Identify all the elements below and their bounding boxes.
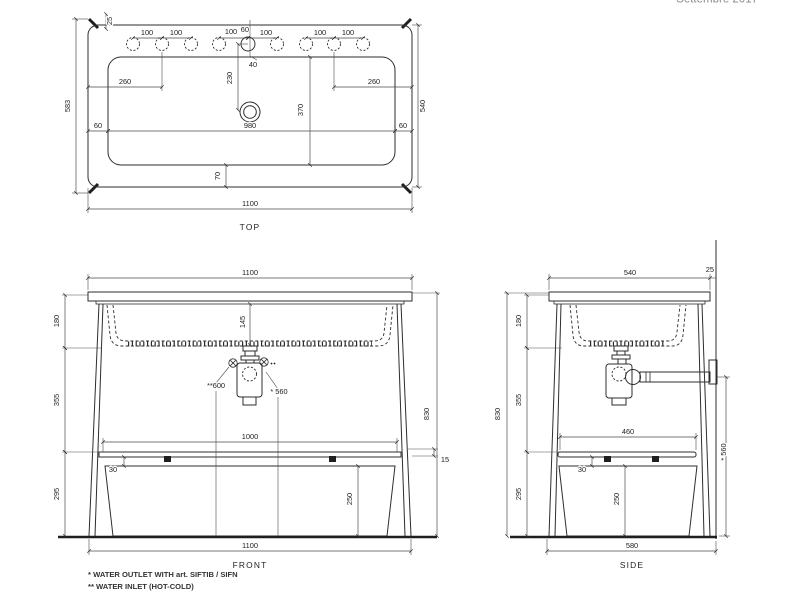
dim-overall-height: 830 xyxy=(493,408,502,420)
drain-hole-outer xyxy=(240,102,260,122)
leg-left xyxy=(95,304,103,536)
dim-corner-tab: 25 xyxy=(105,17,114,25)
dim-rim-gap-left: 60 xyxy=(94,121,102,130)
dim-hole-spacing: 100 xyxy=(314,28,326,37)
dim-basin-inner-depth: 145 xyxy=(238,316,247,328)
dim-outlet-height: * 560 xyxy=(719,443,728,460)
rail-connector xyxy=(164,456,171,462)
corner-tab-bottom-left xyxy=(89,184,98,193)
dim-rail-size: 15 xyxy=(441,455,449,464)
dim-seg-top: 180 xyxy=(514,315,523,327)
tap-hole-option xyxy=(185,38,198,51)
side-dimensions xyxy=(504,274,730,555)
dim-rim-gap-right: 60 xyxy=(399,121,407,130)
dim-hole-to-rim: 40 xyxy=(249,60,257,69)
dim-basin-width: 980 xyxy=(244,121,256,130)
dim-front-bottom-width: 1100 xyxy=(242,541,258,550)
dim-hole-spacing: 100 xyxy=(141,28,153,37)
tap-hole-option xyxy=(300,38,313,51)
dim-overall-depth: 583 xyxy=(63,100,72,112)
dim-seg-bottom: 295 xyxy=(52,488,61,500)
dim-seg-middle: 355 xyxy=(514,394,523,406)
dim-shelf-depth: 460 xyxy=(622,427,634,436)
dim-hole-to-drain: 230 xyxy=(225,72,234,84)
dim-seg-top: 180 xyxy=(52,315,61,327)
towel-rail xyxy=(99,452,401,457)
dim-body-depth: 540 xyxy=(418,100,427,112)
footnote-water-outlet: * WATER OUTLET WITH art. SIFTIB / SIFN xyxy=(88,570,238,579)
trap-outlet-stub xyxy=(243,397,256,405)
footnote-water-inlet: ** WATER INLET (HOT-COLD) xyxy=(88,582,194,591)
corner-tab-top-left xyxy=(89,19,98,28)
dim-seg-middle: 355 xyxy=(52,394,61,406)
water-inlet-symbol xyxy=(260,358,268,366)
side-basin xyxy=(570,305,686,346)
dim-seg-bottom: 295 xyxy=(514,488,523,500)
dim-hole-spacing: 100 xyxy=(260,28,272,37)
bottle-trap xyxy=(237,363,262,397)
tap-hole-option xyxy=(271,38,284,51)
dim-group-offset-right: 260 xyxy=(368,77,380,86)
dim-hole-spacing: 100 xyxy=(225,27,237,36)
trap-outlet-stub-side xyxy=(612,398,626,405)
drain-fitting-side xyxy=(614,346,628,351)
dim-outlet-height: * 560 xyxy=(270,387,287,396)
dim-overall-height: 830 xyxy=(422,408,431,420)
top-view-holes xyxy=(127,37,370,122)
dim-panel-height: 250 xyxy=(345,493,354,505)
front-dimensions xyxy=(62,274,440,555)
dim-shelf-width: 1000 xyxy=(242,432,258,441)
dim-front-top-width: 1100 xyxy=(242,268,258,277)
side-labels: 540 25 180 355 295 830 * 560 460 30 250 … xyxy=(493,265,728,570)
leg-right xyxy=(397,304,405,536)
dim-hole-spacing: 100 xyxy=(170,28,182,37)
basin-rim-outline xyxy=(108,57,395,165)
drawing-sheet: Settembre 2017 xyxy=(0,0,800,600)
dim-overall-width: 1100 xyxy=(242,199,258,208)
drain-hole-inner xyxy=(244,106,257,119)
dim-basin-depth: 370 xyxy=(296,104,305,116)
dim-side-bottom-width: 580 xyxy=(626,541,638,550)
rail-connector xyxy=(604,456,611,462)
washbasin-technical-drawing: Settembre 2017 xyxy=(0,0,800,600)
corner-tab-bottom-right xyxy=(402,184,411,193)
dim-basin-front-gap: 70 xyxy=(213,172,222,180)
top-view: 100 100 100 100 100 100 60 40 230 260 26… xyxy=(63,14,427,232)
towel-rail-side xyxy=(558,452,696,457)
tap-hole-option xyxy=(357,38,370,51)
dim-side-top-depth: 540 xyxy=(624,268,636,277)
rail-connector xyxy=(652,456,659,462)
dim-shelf-gap: 30 xyxy=(109,465,117,474)
tap-hole-option xyxy=(127,38,140,51)
footnotes: * WATER OUTLET WITH art. SIFTIB / SIFN *… xyxy=(88,570,238,591)
top-view-title: TOP xyxy=(240,222,261,232)
dim-inlet-height: **600 xyxy=(207,381,225,390)
drain-fitting xyxy=(243,346,257,351)
dim-panel-height: 250 xyxy=(612,493,621,505)
dim-hole-back-offset: 60 xyxy=(241,25,249,34)
corner-tab-top-right xyxy=(402,19,411,28)
front-view-title: FRONT xyxy=(233,560,268,570)
leg-left xyxy=(89,304,99,536)
tap-hole-option xyxy=(328,38,341,51)
front-structure xyxy=(58,292,437,537)
front-view: 1100 145 180 355 295 830 **600 * 560 100… xyxy=(52,268,449,570)
dim-hole-spacing: 100 xyxy=(342,28,354,37)
water-inlet-symbol xyxy=(229,359,237,367)
sheet-date: Settembre 2017 xyxy=(676,0,758,6)
trap-elbow-nut xyxy=(626,370,641,385)
side-view-title: SIDE xyxy=(620,560,644,570)
tap-hole-option xyxy=(156,38,169,51)
lower-shelf-panel-side xyxy=(559,466,697,536)
side-view: 540 25 180 355 295 830 * 560 460 30 250 … xyxy=(493,240,730,570)
tap-hole-option xyxy=(213,38,226,51)
leg-right xyxy=(401,304,411,536)
dim-group-offset-left: 260 xyxy=(119,77,131,86)
dim-shelf-gap: 30 xyxy=(578,465,586,474)
countertop xyxy=(88,292,412,301)
countertop-side xyxy=(549,292,710,301)
rail-connector xyxy=(329,456,336,462)
dim-wall-gap: 25 xyxy=(706,265,714,274)
bottle-trap-side xyxy=(606,364,632,398)
